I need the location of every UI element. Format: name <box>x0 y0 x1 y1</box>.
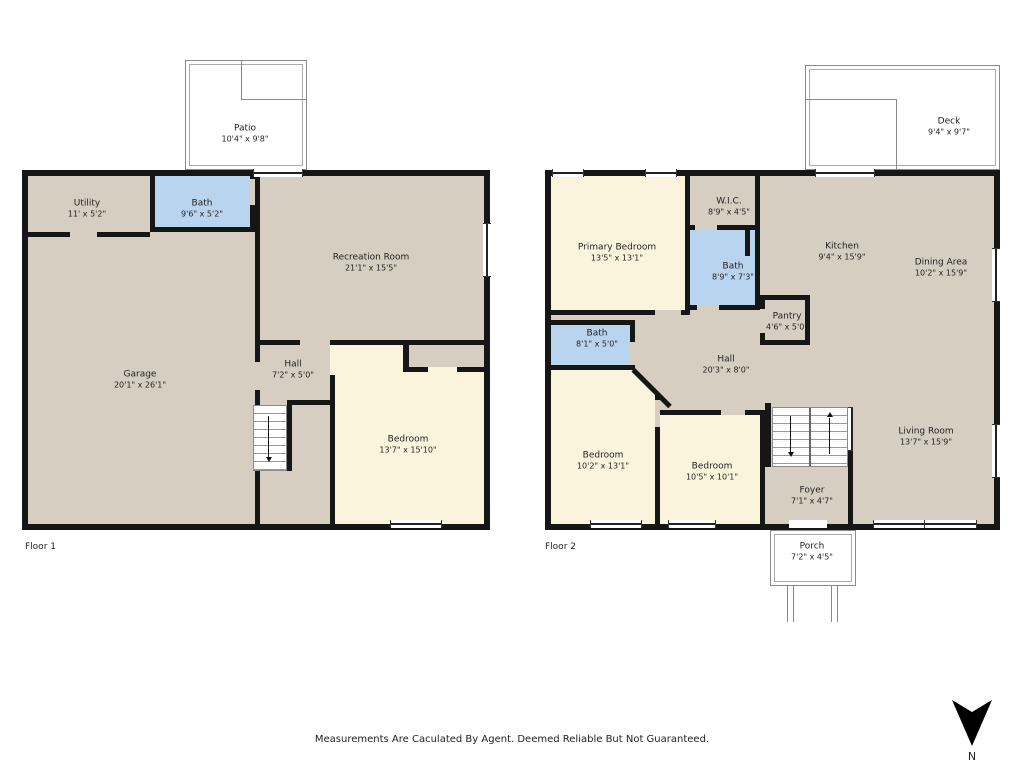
porch-step-rail <box>793 586 794 622</box>
closet-f1 <box>403 345 484 367</box>
disclaimer-text: Measurements Are Caculated By Agent. Dee… <box>0 734 1024 745</box>
window <box>645 169 677 177</box>
door-opening <box>250 179 255 205</box>
wic-label: W.I.C. 8'9" x 4'5" <box>708 196 750 219</box>
front-door-opening <box>789 520 827 528</box>
deck-outline <box>805 65 1000 170</box>
wall <box>287 405 292 471</box>
foyer-label: Foyer 7'1" x 4'7" <box>791 485 833 508</box>
bedroom-left-label: Bedroom 10'2" x 13'1" <box>577 450 629 473</box>
deck-divider-h <box>806 99 896 100</box>
door-opening <box>630 342 635 365</box>
utility-label: Utility 11' x 5'2" <box>68 198 106 221</box>
door-opening <box>695 225 717 230</box>
primary-bedroom-label: Primary Bedroom 13'5" x 13'1" <box>578 242 656 265</box>
recreation-label: Recreation Room 21'1" x 15'5" <box>333 252 410 275</box>
wall <box>760 295 765 309</box>
bedroom-f1-label: Bedroom 13'7" x 15'10" <box>379 434 436 457</box>
floor2-tag: Floor 2 <box>545 542 576 552</box>
deck-label: Deck 9'4" x 9'7" <box>928 116 970 139</box>
garage-label: Garage 20'1" x 26'1" <box>114 369 166 392</box>
window <box>873 520 926 528</box>
stairs-direction-line <box>268 416 269 458</box>
porch-step-rail <box>831 586 832 622</box>
patio-outline <box>185 60 307 170</box>
window <box>668 520 716 528</box>
floorplan-canvas: Patio 10'4" x 9'8" Utility 11' x 5'2" Ba… <box>0 0 1024 768</box>
north-arrow-icon <box>952 700 992 746</box>
bedroom-right-label: Bedroom 10'5" x 10'1" <box>686 461 738 484</box>
stairs-down-arrow <box>266 457 272 462</box>
door-opening <box>655 310 681 315</box>
patio-step <box>241 60 307 100</box>
window <box>253 169 303 177</box>
patio-label: Patio 10'4" x 9'8" <box>221 123 268 146</box>
stairs-up-arrow <box>827 412 833 417</box>
wall <box>255 176 260 362</box>
bath-f1-label: Bath 9'6" x 5'2" <box>181 198 223 221</box>
pantry-label: Pantry 4'6" x 5'0" <box>766 311 808 334</box>
wall <box>28 232 70 237</box>
stairs-direction-line <box>790 416 791 452</box>
sliding-door <box>815 169 875 177</box>
porch-step-rail <box>837 586 838 622</box>
stairs-direction-line <box>829 418 830 454</box>
hall-f1-label: Hall 7'2" x 5'0" <box>272 359 314 382</box>
door-opening <box>697 305 719 310</box>
stairs-f2 <box>772 407 848 467</box>
wall <box>97 232 150 237</box>
wall <box>848 449 853 524</box>
hall-f2-label: Hall 20'3" x 8'0" <box>702 354 749 377</box>
wall <box>760 333 765 345</box>
wall <box>330 375 335 524</box>
floor1-plan <box>22 170 490 530</box>
living-room-label: Living Room 13'7" x 15'9" <box>898 426 953 449</box>
floor1-tag: Floor 1 <box>25 542 56 552</box>
window <box>992 248 1000 302</box>
porch-label: Porch 7'2" x 4'5" <box>791 541 833 564</box>
deck-divider-v <box>896 99 897 169</box>
window <box>992 424 1000 478</box>
wall <box>403 367 428 372</box>
window <box>390 520 442 528</box>
kitchen-label: Kitchen 9'4" x 15'9" <box>818 241 865 264</box>
porch-step-rail <box>787 586 788 622</box>
wall <box>287 400 335 405</box>
dining-label: Dining Area 10'2" x 15'9" <box>915 257 968 280</box>
north-letter: N <box>952 750 992 763</box>
wall <box>745 230 750 256</box>
door-opening <box>721 410 745 415</box>
window <box>483 223 491 277</box>
window <box>848 407 853 451</box>
stairs-run-down <box>773 408 809 466</box>
stairs-down-arrow <box>788 452 794 457</box>
room-bedroom-left <box>551 370 660 524</box>
door-opening <box>655 400 660 427</box>
bath-upper-label: Bath 8'9" x 7'3" <box>712 261 754 284</box>
wall <box>765 403 771 467</box>
wall <box>457 367 484 372</box>
north-indicator: N <box>952 700 992 763</box>
window <box>590 520 642 528</box>
window <box>924 520 977 528</box>
bath-lower-label: Bath 8'1" x 5'0" <box>576 328 618 351</box>
wall <box>255 340 300 345</box>
window <box>552 169 584 177</box>
